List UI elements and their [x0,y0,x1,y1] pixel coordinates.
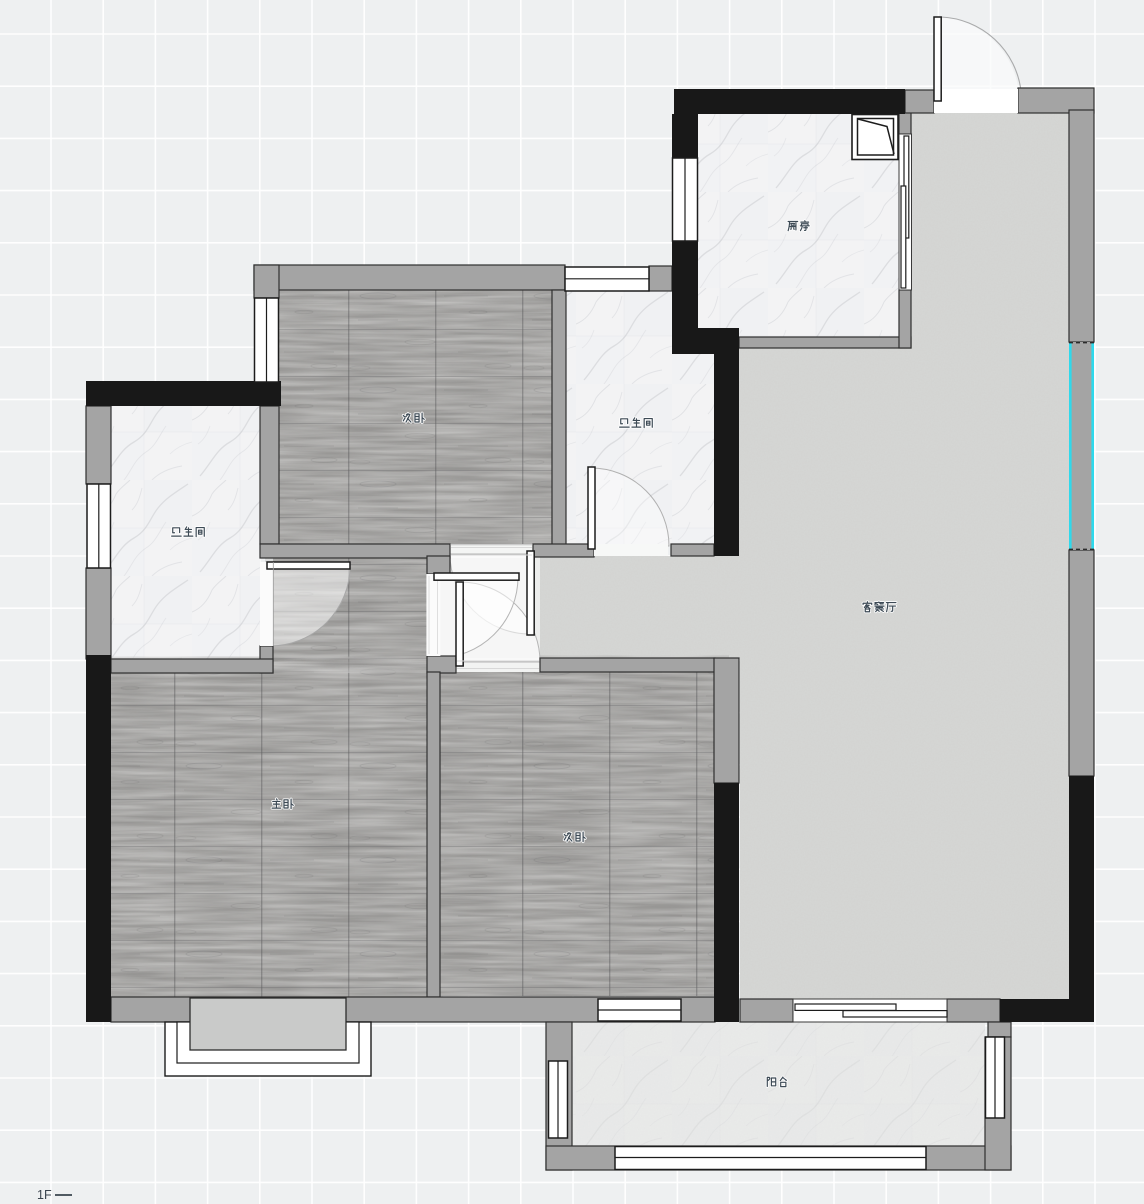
svg-text:1F: 1F [37,1188,52,1202]
